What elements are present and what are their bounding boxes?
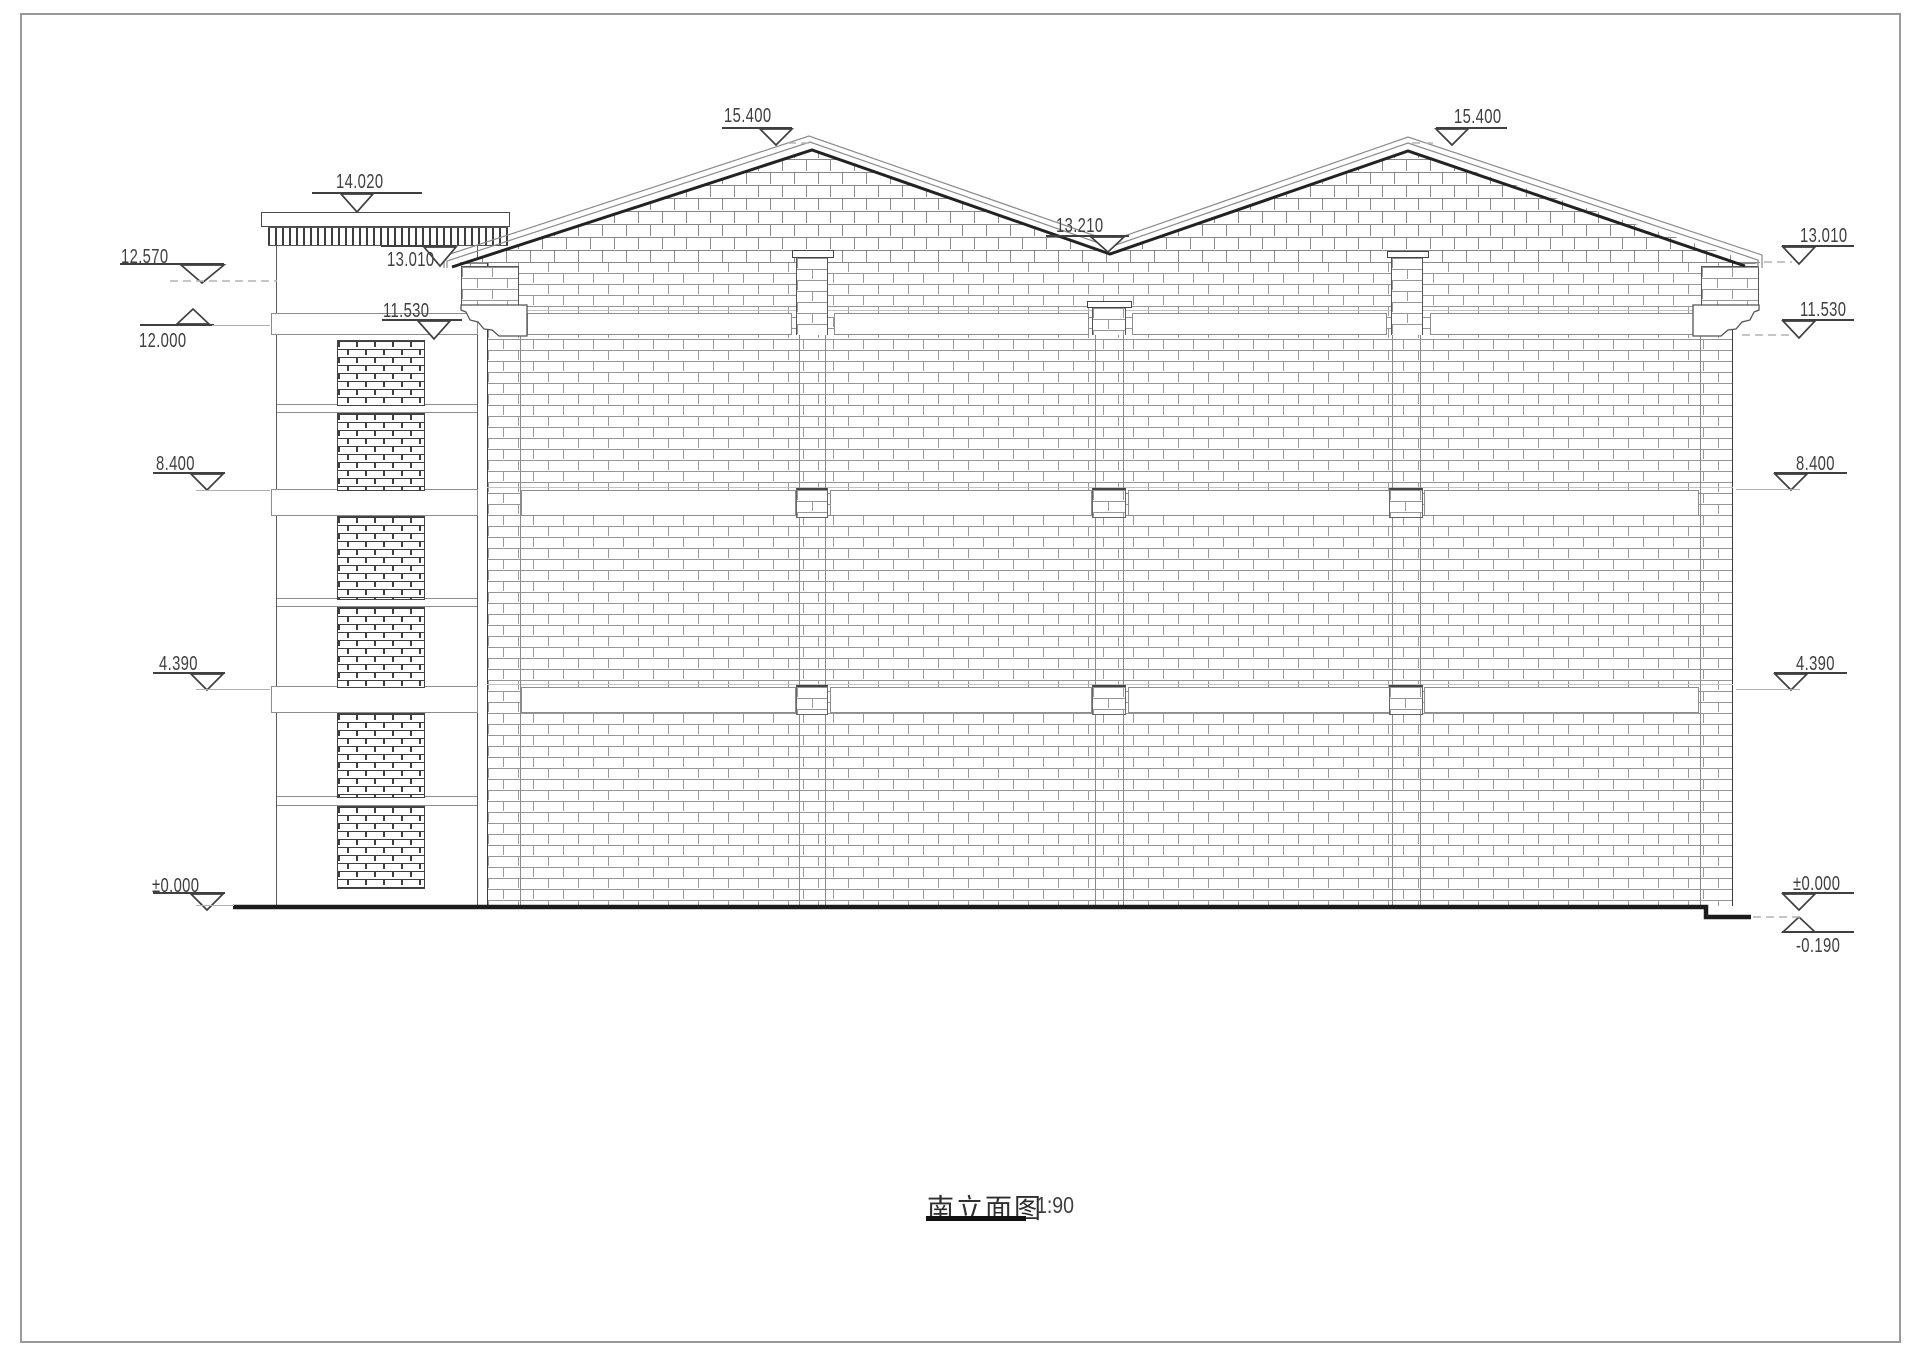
elevation-label-15400-right: 15.400 [1454, 107, 1501, 127]
elevation-label-8400-left: 8.400 [156, 454, 195, 474]
marker-triangle-14020 [341, 194, 373, 212]
marker-triangle-4390-left [191, 674, 223, 690]
marker-triangle-0-right [1783, 894, 1815, 910]
marker-triangle-12000-up [177, 309, 209, 324]
marker-triangle-minus0190-up [1783, 917, 1815, 932]
elevation-label-minus0190: -0.190 [1796, 936, 1840, 956]
marker-triangle-13210 [1091, 237, 1124, 252]
elevation-label-0-right: ±0.000 [1793, 874, 1840, 894]
leader-4390-left [196, 689, 270, 690]
dim-rule-12000 [140, 324, 214, 326]
leader-0-left [196, 905, 234, 906]
marker-triangle-15400-right [1436, 129, 1468, 145]
elevation-label-13210: 13.210 [1056, 216, 1103, 236]
dim-rule-13010-left [381, 245, 456, 247]
marker-triangle-15400-left [760, 129, 792, 145]
elevation-label-14020: 14.020 [336, 172, 383, 192]
elevation-label-4390-right: 4.390 [1796, 654, 1835, 674]
elevation-label-4390-left: 4.390 [159, 654, 198, 674]
elevation-label-13010-left: 13.010 [387, 250, 434, 270]
elevation-label-13010-right: 13.010 [1800, 226, 1847, 246]
elevation-label-0-left: ±0.000 [152, 876, 199, 896]
leader-4390-right [1736, 689, 1800, 690]
dimension-marks [0, 0, 1920, 1358]
dim-rule-minus0190 [1782, 931, 1854, 933]
leader-8400-left [196, 490, 270, 491]
elevation-label-11530-left: 11.530 [383, 301, 429, 321]
elevation-label-8400-right: 8.400 [1796, 454, 1835, 474]
elevation-label-15400-left: 15.400 [724, 106, 771, 126]
marker-triangle-11530-left [418, 321, 450, 339]
leader-8400-right [1736, 489, 1800, 490]
dim-rule-15400-left [722, 127, 792, 129]
elevation-label-12570: 12.570 [121, 247, 168, 267]
elevation-label-11530-right: 11.530 [1800, 300, 1846, 320]
drawing-scale: 1:90 [1036, 1192, 1074, 1219]
drawing-title-underline [926, 1216, 1026, 1221]
marker-triangle-8400-right [1775, 474, 1807, 490]
south-elevation-drawing: 12.570 12.000 8.400 4.390 ±0.000 14.020 … [0, 0, 1920, 1358]
elevation-label-12000: 12.000 [139, 331, 186, 351]
marker-triangle-8400-left [191, 474, 223, 490]
leader-12000 [212, 325, 270, 326]
marker-triangle-4390-right [1775, 674, 1807, 690]
marker-triangle-13010-right [1783, 247, 1815, 264]
